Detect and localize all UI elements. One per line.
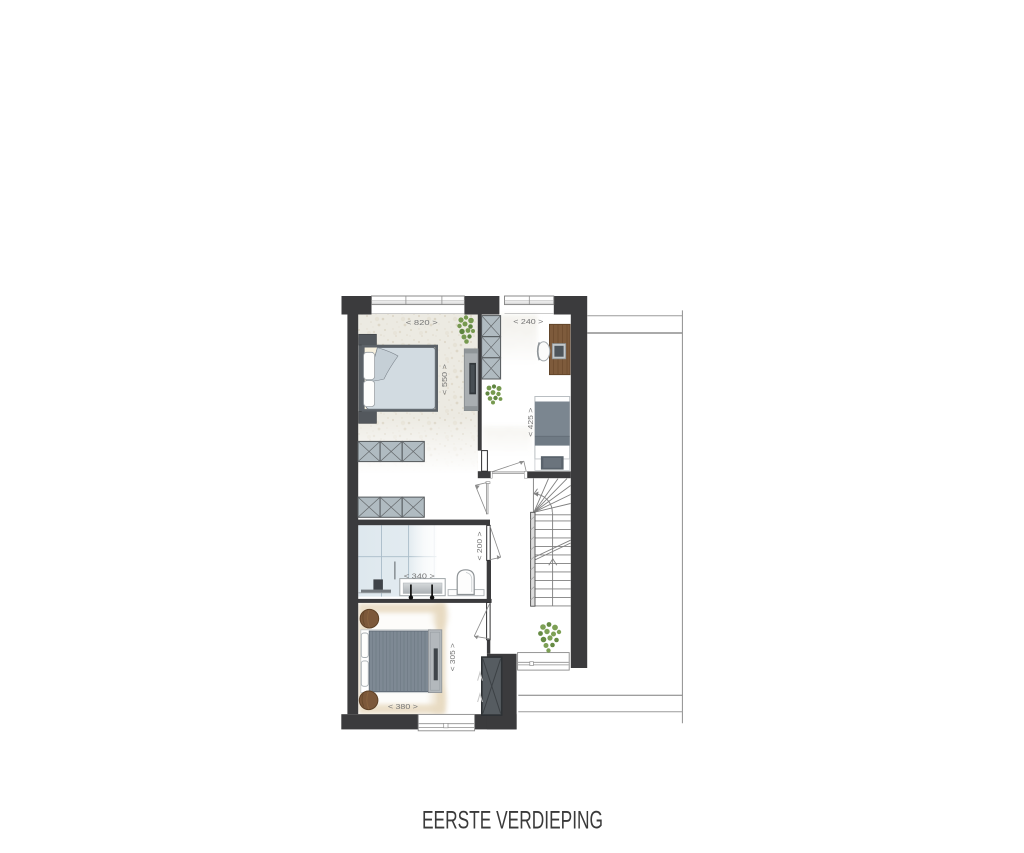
svg-text:< 425 >: < 425 > [526,408,535,437]
svg-text:< 380 >: < 380 > [388,702,418,711]
svg-text:< 820 >: < 820 > [406,318,438,327]
svg-text:< 550 >: < 550 > [440,364,449,395]
svg-text:< 200 >: < 200 > [475,532,484,561]
svg-text:< 340 >: < 340 > [404,572,435,581]
svg-text:< 240 >: < 240 > [513,317,543,326]
svg-text:< 305 >: < 305 > [448,643,457,671]
svg-text:EERSTE VERDIEPING: EERSTE VERDIEPING [422,807,603,835]
